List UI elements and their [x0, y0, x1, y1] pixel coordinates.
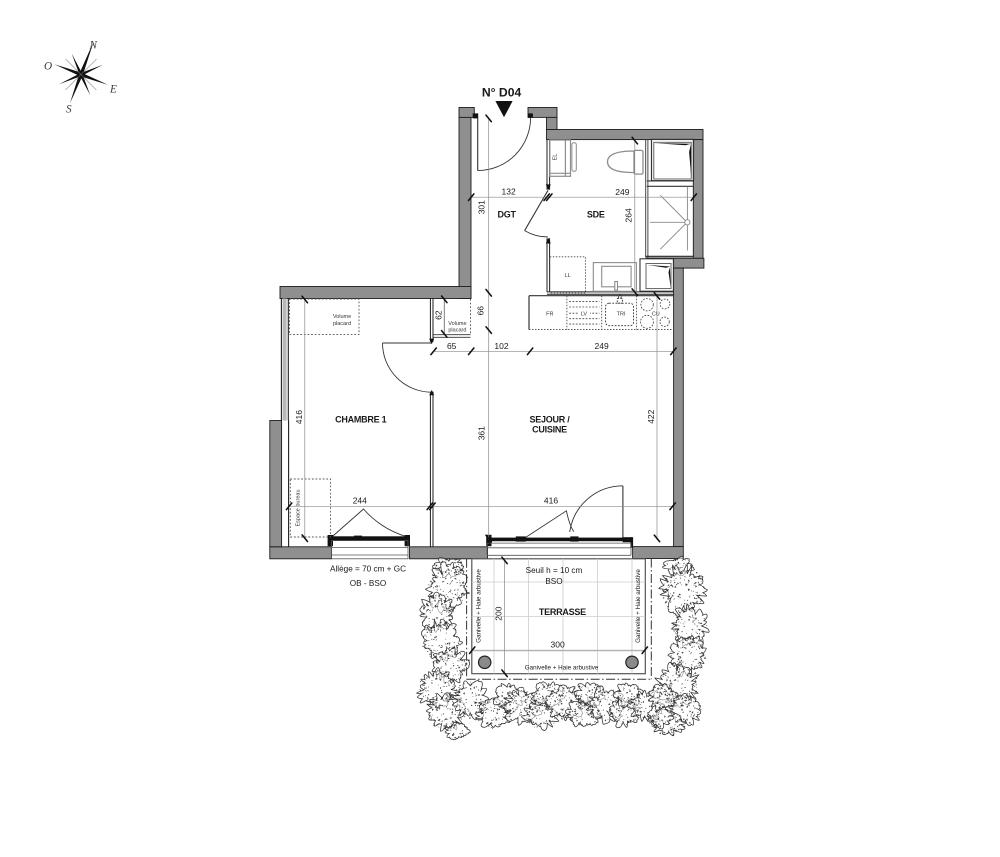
svg-text:CUISINE: CUISINE [532, 425, 567, 435]
svg-text:249: 249 [595, 341, 609, 351]
svg-text:132: 132 [502, 187, 516, 197]
svg-text:O: O [44, 60, 52, 72]
svg-text:66: 66 [476, 306, 486, 316]
svg-text:102: 102 [494, 341, 508, 351]
svg-text:416: 416 [544, 496, 558, 506]
svg-text:FR: FR [546, 311, 553, 317]
svg-text:BSO: BSO [545, 577, 562, 586]
svg-text:N° D04: N° D04 [482, 86, 522, 100]
svg-text:301: 301 [477, 200, 487, 214]
svg-text:E: E [109, 84, 117, 96]
svg-text:264: 264 [624, 208, 634, 222]
svg-text:DGT: DGT [497, 210, 516, 220]
svg-text:244: 244 [353, 496, 367, 506]
svg-text:OB - BSO: OB - BSO [350, 579, 386, 588]
svg-text:CU: CU [652, 311, 660, 317]
svg-text:416: 416 [294, 410, 304, 424]
svg-text:SEJOUR /: SEJOUR / [529, 415, 570, 425]
svg-text:TERRASSE: TERRASSE [539, 607, 586, 617]
svg-text:Espace bureau: Espace bureau [296, 490, 302, 527]
svg-text:TRI: TRI [617, 311, 626, 317]
svg-text:300: 300 [551, 640, 565, 650]
svg-text:LL: LL [565, 273, 571, 279]
svg-text:Volume: Volume [333, 314, 351, 320]
svg-text:SDE: SDE [587, 210, 605, 220]
svg-text:361: 361 [477, 426, 487, 440]
svg-text:EL: EL [553, 154, 559, 161]
svg-text:Allège = 70 cm + GC: Allège = 70 cm + GC [330, 564, 406, 573]
svg-text:placard: placard [448, 328, 466, 334]
svg-text:S: S [66, 104, 72, 116]
svg-text:N: N [88, 39, 97, 51]
svg-text:placard: placard [333, 321, 351, 327]
svg-text:Ganivelle + Haie arbustive: Ganivelle + Haie arbustive [635, 569, 642, 643]
svg-text:LV: LV [581, 311, 588, 317]
svg-text:Seuil h = 10 cm: Seuil h = 10 cm [526, 566, 583, 575]
svg-text:422: 422 [646, 409, 656, 423]
svg-text:Volume: Volume [448, 321, 466, 327]
svg-text:Ganivelle + Haie arbustive: Ganivelle + Haie arbustive [525, 665, 599, 672]
svg-text:249: 249 [615, 187, 629, 197]
svg-text:65: 65 [447, 341, 457, 351]
svg-text:Ganivelle + Haie arbustive: Ganivelle + Haie arbustive [475, 569, 482, 643]
svg-text:CHAMBRE 1: CHAMBRE 1 [335, 415, 386, 425]
svg-text:62: 62 [433, 310, 443, 320]
svg-text:200: 200 [493, 606, 503, 620]
